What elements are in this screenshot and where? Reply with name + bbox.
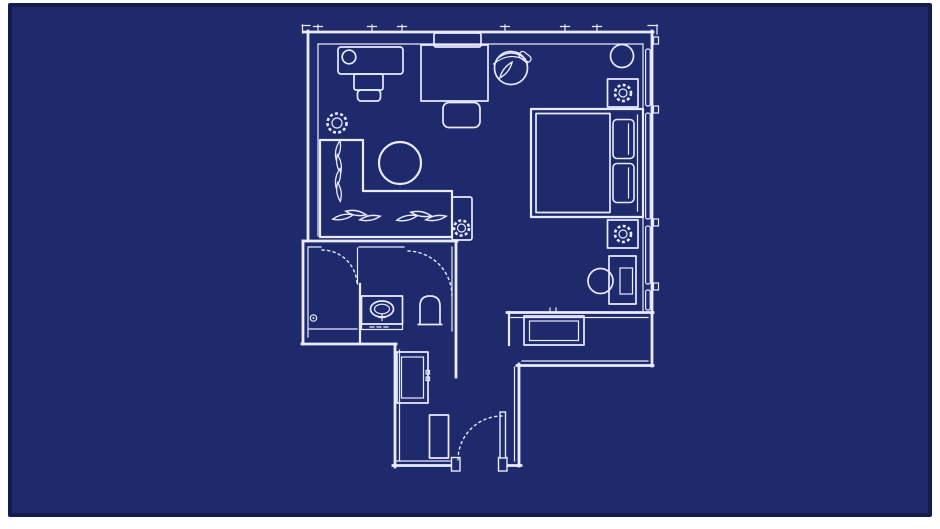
window-mullion-tick — [654, 37, 659, 44]
bathroom — [310, 248, 452, 330]
desk-chair-back — [354, 74, 383, 90]
window-glazing — [646, 49, 651, 106]
window-wall — [643, 31, 659, 366]
shoe-cabinet — [430, 415, 449, 458]
vanity — [362, 296, 403, 330]
table-lamp-top — [615, 85, 631, 101]
door-post-right — [499, 458, 508, 472]
nightstand-bottom — [608, 220, 639, 248]
coffee-table — [379, 142, 421, 184]
desk-chair-seat — [358, 90, 381, 101]
writing-desk-item — [620, 268, 633, 294]
dining-chair-bottom — [443, 103, 480, 128]
entry-door — [452, 412, 508, 471]
armchair-armrest — [518, 50, 533, 64]
sink-basin-inner — [375, 304, 390, 314]
side-table-plant — [454, 221, 469, 236]
counter-inner — [530, 321, 579, 341]
round-side-table — [611, 45, 634, 68]
living-area — [320, 33, 532, 240]
window-mullion-tick — [654, 219, 659, 226]
sink-faucet — [379, 315, 385, 321]
mattress — [536, 114, 610, 213]
door-post-left — [452, 458, 461, 472]
walls — [302, 25, 659, 467]
swivel-armchair — [494, 50, 533, 84]
table-lamp-top-center — [619, 89, 627, 97]
floor-plan — [0, 0, 940, 529]
closet-inner — [402, 357, 424, 398]
bedroom-area — [531, 45, 643, 305]
blueprint-image — [0, 0, 940, 529]
side-table-plant-center — [458, 224, 466, 232]
table-lamp-bottom-center — [619, 230, 627, 238]
table-lamp-bottom — [615, 226, 631, 242]
bed-pillow — [613, 164, 634, 203]
l-shaped-sofa — [320, 140, 452, 237]
entry-hall — [397, 352, 507, 471]
toilet — [418, 296, 443, 325]
shower-door-swing — [322, 250, 357, 285]
armchair-cushion — [498, 61, 514, 79]
window-mullion-tick — [654, 283, 659, 290]
window-glazing — [646, 226, 651, 284]
potted-plant — [328, 114, 347, 133]
entry-door-swing — [458, 416, 502, 460]
shower-drain-center — [313, 317, 315, 319]
throw-pillow — [336, 182, 343, 201]
entry-door-leaf — [500, 412, 506, 458]
dining-table — [421, 45, 488, 101]
nightstand-top — [608, 79, 639, 107]
desk-lamp — [342, 50, 356, 64]
potted-plant-center — [332, 118, 342, 128]
double-bed — [531, 109, 643, 217]
window-glazing — [646, 113, 651, 219]
window-glazing — [646, 290, 651, 310]
bathroom-door-swing — [408, 251, 452, 296]
window-mullion-tick — [654, 106, 659, 113]
kitchenette-nook — [524, 316, 584, 345]
bed-pillow — [613, 120, 634, 159]
